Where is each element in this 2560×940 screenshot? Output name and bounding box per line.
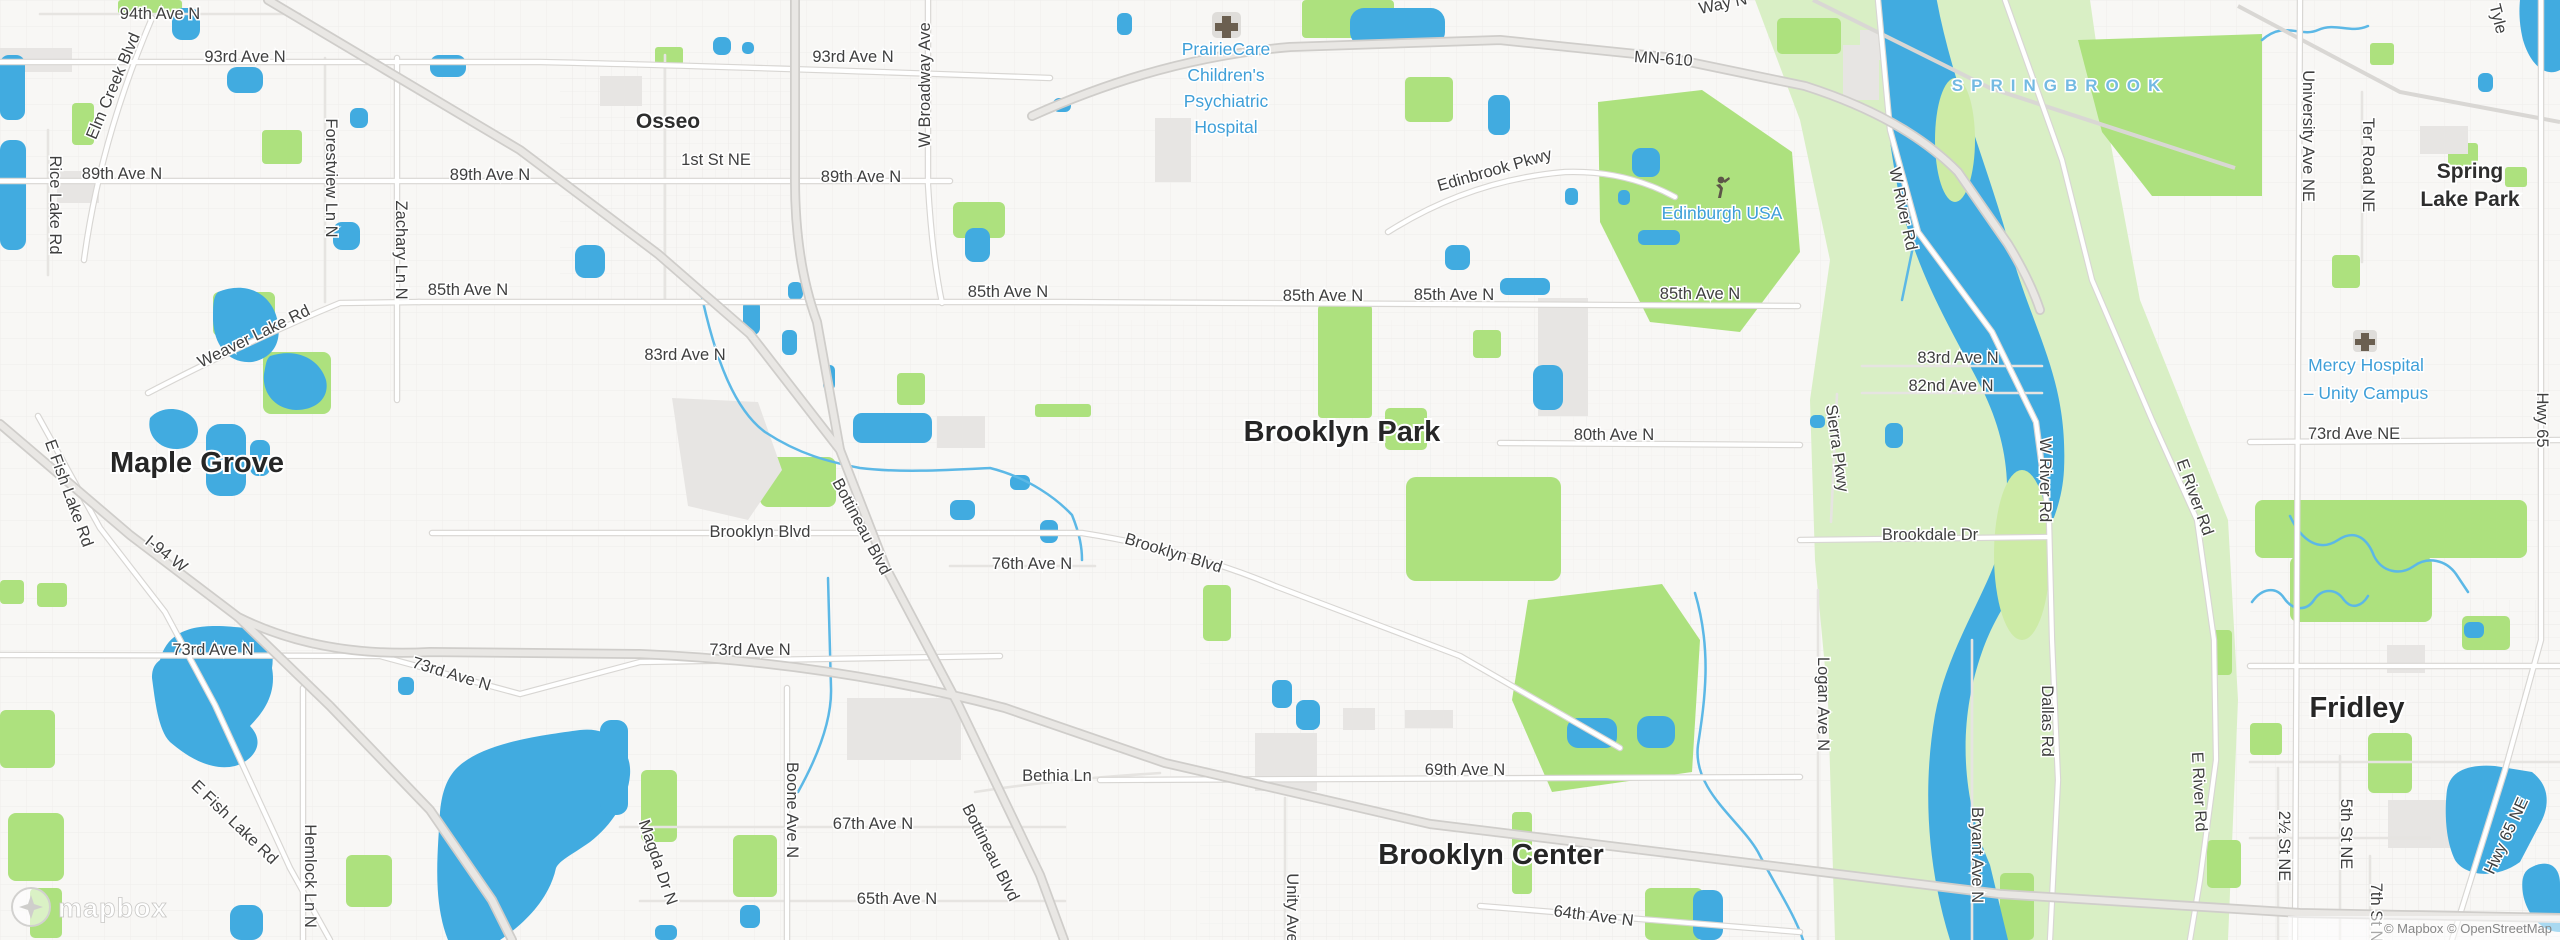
road-label-w-river-rd: W River Rd	[2036, 438, 2054, 522]
mapbox-logo[interactable]: mapbox	[12, 888, 168, 926]
hospital-icon	[2353, 330, 2377, 352]
road-label-brooklyn-blvd: Brooklyn Blvd	[710, 523, 811, 541]
road-label-65th-ave-n: 65th Ave N	[857, 890, 937, 908]
poi-label-edinburgh-usa: Edinburgh USA	[1662, 203, 1783, 223]
road-label-1st-st-ne: 1st St NE	[681, 151, 751, 169]
attribution-bar[interactable]: © Mapbox © OpenStreetMap	[2288, 916, 2560, 940]
road-label-93rd-ave-n: 93rd Ave N	[204, 48, 285, 66]
road-label-zachary-ln-n: Zachary Ln N	[392, 200, 410, 299]
road-label-69th-ave-n: 69th Ave N	[1425, 761, 1505, 779]
road-label-93rd-ave-n: 93rd Ave N	[812, 48, 893, 66]
road-label-ter-road-ne: Ter Road NE	[2359, 118, 2377, 212]
road-label-85th-ave-n: 85th Ave N	[968, 283, 1048, 301]
road-label-hwy-65: Hwy 65	[2533, 392, 2551, 447]
town-label-spring-lake-park-line2: Lake Park	[2420, 188, 2520, 211]
city-label-fridley: Fridley	[2309, 692, 2404, 724]
road-label-w-broadway-ave: W Broadway Ave	[916, 22, 934, 147]
road-label-89th-ave-n: 89th Ave N	[450, 166, 530, 184]
map-viewport[interactable]: 94th Ave N 93rd Ave N Elm Creek Blvd Ric…	[0, 0, 2560, 940]
road-label-dallas-rd: Dallas Rd	[2038, 685, 2056, 757]
road-label-bryant-ave-n: Bryant Ave N	[1968, 807, 1986, 903]
road-label-logan-ave-n: Logan Ave N	[1814, 657, 1832, 751]
town-label-spring-lake-park-line1: Spring	[2437, 160, 2504, 183]
road-label-89th-ave-n: 89th Ave N	[821, 168, 901, 186]
road-label-85th-ave-n: 85th Ave N	[428, 281, 508, 299]
road-label-85th-ave-n: 85th Ave N	[1660, 285, 1740, 303]
road-label-83rd-ave-n: 83rd Ave N	[1917, 349, 1998, 367]
poi-label-mercy-hospital-line1: Mercy Hospital	[2308, 355, 2424, 375]
city-label-maple-grove: Maple Grove	[110, 447, 284, 479]
map-canvas[interactable]: 94th Ave N 93rd Ave N Elm Creek Blvd Ric…	[0, 0, 2560, 940]
road-label-67th-ave-n: 67th Ave N	[833, 815, 913, 833]
road-label-boone-ave-n: Boone Ave N	[783, 762, 801, 858]
road-label-89th-ave-n: 89th Ave N	[82, 165, 162, 183]
road-label-83rd-ave-n: 83rd Ave N	[644, 346, 725, 364]
road-label-85th-ave-n: 85th Ave N	[1283, 287, 1363, 305]
road-label-rice-lake-rd: Rice Lake Rd	[46, 155, 64, 254]
road-label-bethia-ln: Bethia Ln	[1022, 767, 1092, 785]
poi-label-mercy-hospital-line2: – Unity Campus	[2304, 383, 2429, 403]
road-label-73rd-ave-ne: 73rd Ave NE	[2308, 425, 2400, 443]
road-label-73rd-ave-n: 73rd Ave N	[709, 641, 790, 659]
road-label-hemlock-ln-n: Hemlock Ln N	[301, 824, 319, 928]
road-label-80th-ave-n: 80th Ave N	[1574, 426, 1654, 444]
road-label-82nd-ave-n: 82nd Ave N	[1908, 377, 1993, 395]
road-label-85th-ave-n: 85th Ave N	[1414, 286, 1494, 304]
road-label-university-ave-ne: University Ave NE	[2299, 70, 2317, 202]
poi-label-prairiecare-line2: Children's	[1187, 65, 1265, 85]
poi-label-prairiecare-line1: PrairieCare	[1182, 39, 1271, 59]
attribution-text: © Mapbox © OpenStreetMap	[2384, 921, 2552, 936]
reserve-label-springbrook: SPRINGBROOK	[1952, 76, 2168, 95]
road-label-73rd-ave-n: 73rd Ave N	[172, 641, 253, 659]
road-label-unity-ave: Unity Ave	[1283, 873, 1301, 940]
poi-label-prairiecare-line3: Psychiatric	[1184, 91, 1269, 111]
road-label-76th-ave-n: 76th Ave N	[992, 555, 1072, 573]
road-label-2half-st-ne: 2½ St NE	[2275, 811, 2293, 882]
road-label-94th-ave-n: 94th Ave N	[120, 5, 200, 23]
town-label-osseo: Osseo	[636, 110, 700, 133]
city-label-brooklyn-park: Brooklyn Park	[1244, 416, 1441, 448]
mapbox-logo-wordmark: mapbox	[58, 893, 168, 923]
road-label-brookdale-dr: Brookdale Dr	[1882, 526, 1979, 544]
poi-label-prairiecare-line4: Hospital	[1194, 117, 1257, 137]
city-label-brooklyn-center: Brooklyn Center	[1378, 839, 1604, 871]
road-label-5th-st-ne: 5th St NE	[2337, 799, 2355, 870]
hospital-icon	[1212, 12, 1241, 38]
road-label-forestview-ln-n: Forestview Ln N	[322, 118, 340, 237]
